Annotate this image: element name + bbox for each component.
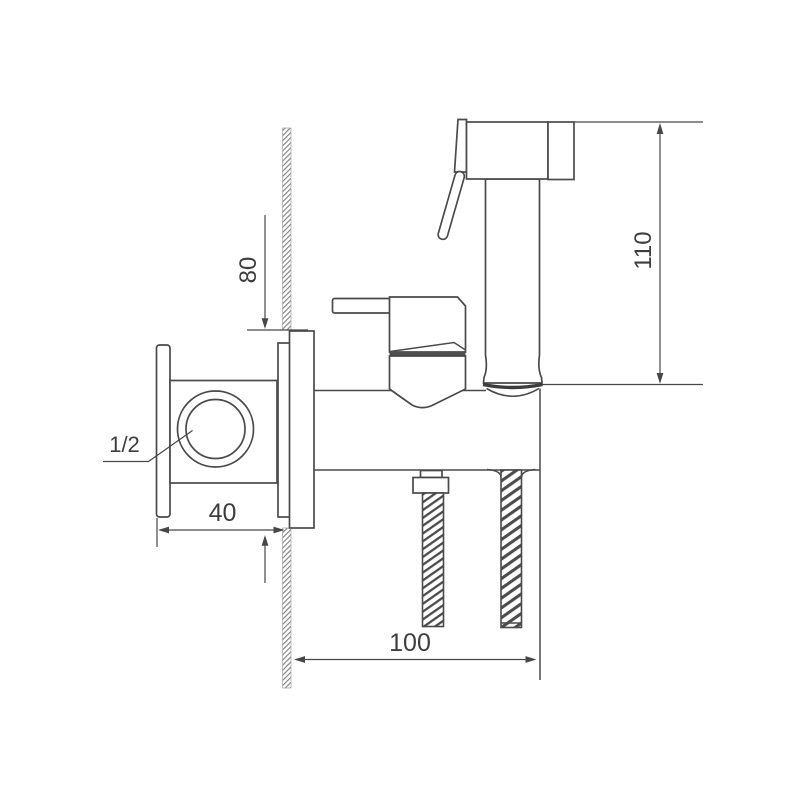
bolt-hex-head xyxy=(413,478,449,494)
trigger-lever xyxy=(437,170,465,240)
wall-hatch-lower xyxy=(283,528,292,688)
thread-size-label: 1/2 xyxy=(109,432,140,457)
flexible-hose xyxy=(487,470,536,628)
sprayer-handle xyxy=(484,179,543,383)
wall-hatch-upper xyxy=(283,128,292,330)
mounting-bolt xyxy=(413,471,449,627)
arrow-left-icon xyxy=(158,527,169,534)
sprayer-base-rim xyxy=(483,385,543,388)
dim-110-label: 110 xyxy=(630,231,657,269)
dim-40-label: 40 xyxy=(209,499,237,527)
dim-100-label: 100 xyxy=(389,629,431,657)
arrow-down-icon xyxy=(262,318,269,329)
technical-drawing-page: 110 80 40 100 1/2 xyxy=(0,0,800,800)
bolt-threaded-shank xyxy=(423,493,444,627)
trigger-back-plate xyxy=(455,120,467,173)
technical-drawing-canvas: 110 80 40 100 1/2 xyxy=(0,0,800,800)
holder-dish xyxy=(487,389,540,397)
valve-body xyxy=(390,356,466,408)
sprayer-head xyxy=(467,122,549,179)
dimension-100: 100 xyxy=(294,629,537,663)
supply-flange xyxy=(157,345,171,517)
arrow-right-icon xyxy=(526,656,537,663)
mounting-subplate xyxy=(278,343,291,517)
mixer-cartridge xyxy=(390,297,466,352)
escutcheon-plate xyxy=(290,331,315,528)
arrow-down-icon xyxy=(657,373,664,384)
connection-inner-circle xyxy=(186,400,245,459)
arrow-left-icon xyxy=(294,656,305,663)
hose-body xyxy=(501,470,522,628)
bolt-cap xyxy=(421,471,443,478)
supply-elbow xyxy=(157,345,278,517)
arrow-up-icon xyxy=(262,535,269,546)
sprayer-head-nut xyxy=(548,122,574,180)
arrow-up-icon xyxy=(657,123,664,134)
mixer-lever-handle xyxy=(333,299,391,314)
dim-80-label: 80 xyxy=(235,257,262,284)
